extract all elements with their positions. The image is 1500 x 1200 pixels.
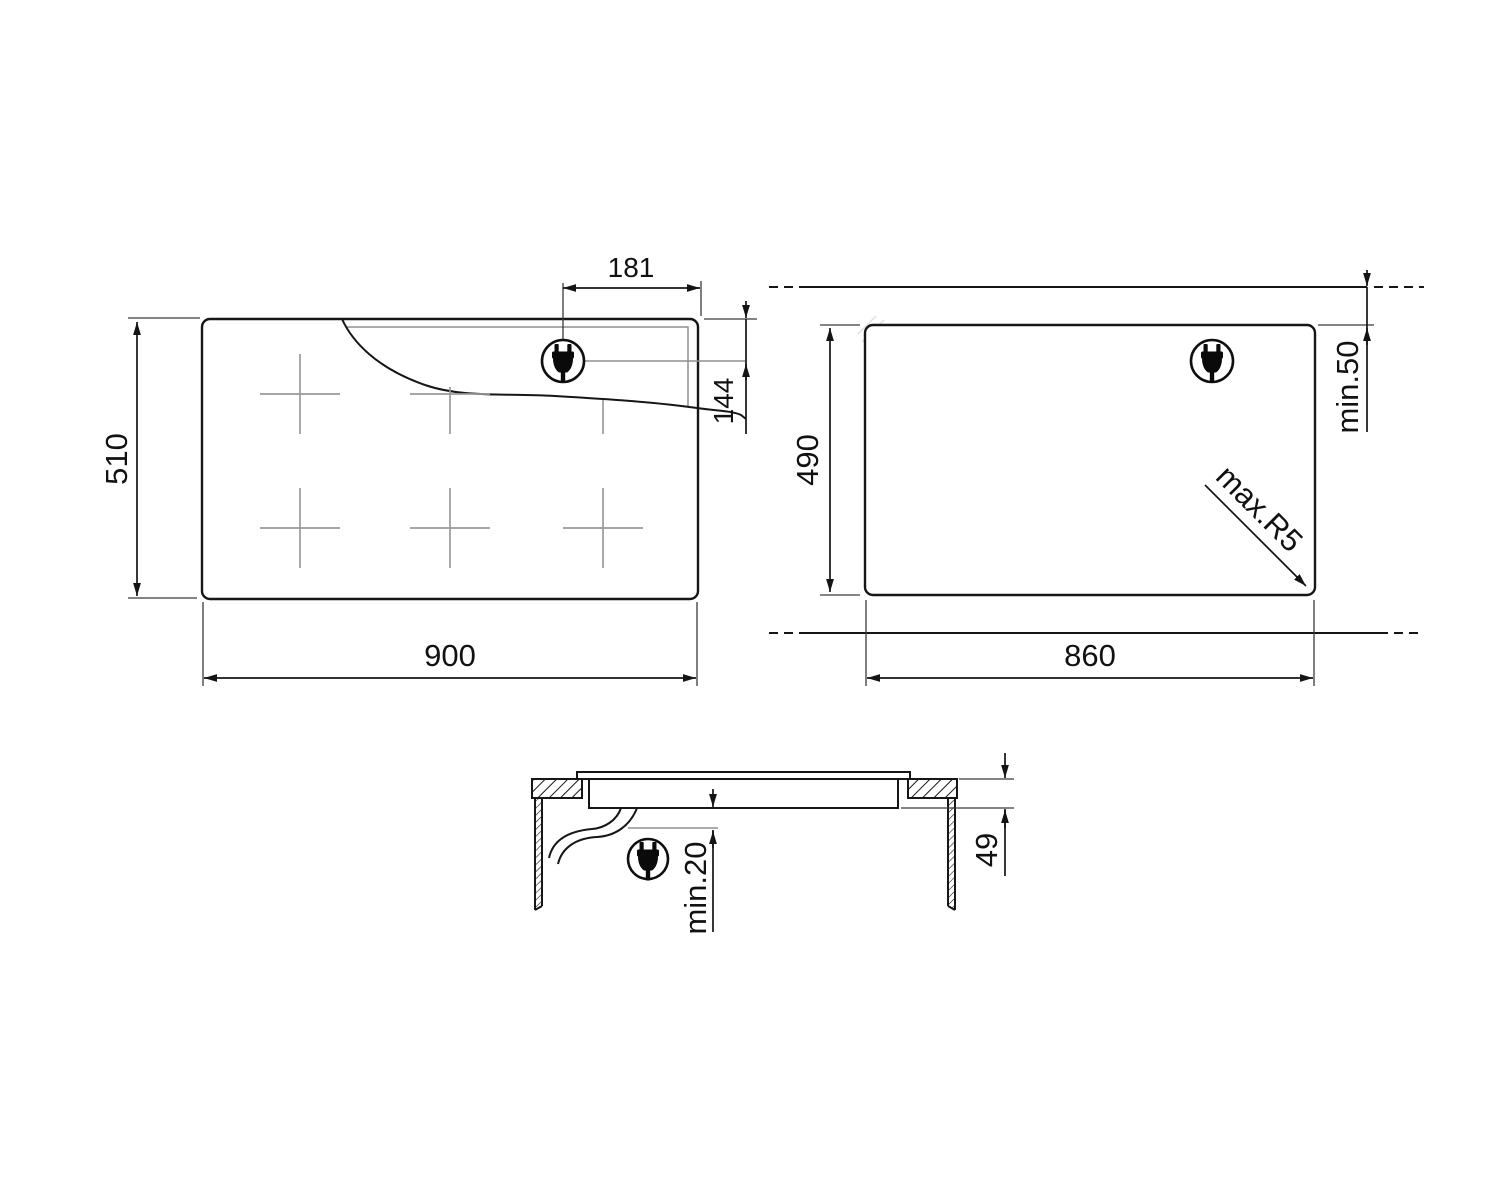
dim-depth-510: 510 — [99, 318, 200, 598]
plan-view: 181 144 510 900 — [99, 252, 757, 686]
worktop-left-block — [532, 779, 582, 798]
installation-drawing: 181 144 510 900 — [0, 0, 1500, 1200]
cabinet-right-panel — [948, 798, 955, 910]
dim-plug-from-top: 144 — [704, 301, 757, 434]
dim-min-front-clearance: min.50 — [1318, 270, 1374, 434]
dim-label-min20: min.20 — [678, 841, 713, 934]
worktop-right-block — [908, 779, 957, 798]
dim-label-144: 144 — [708, 378, 739, 425]
cutout-view: min.50 max.R5 490 860 — [769, 270, 1424, 686]
power-plug-icon — [1191, 340, 1233, 383]
hob-glass-top-section — [577, 772, 910, 779]
dim-plug-from-right: 181 — [563, 252, 701, 316]
dim-label-49: 49 — [969, 833, 1004, 867]
dim-label-510: 510 — [99, 433, 134, 485]
section-view: min.20 49 — [532, 753, 1014, 935]
drawing-canvas: 181 144 510 900 — [0, 0, 1500, 1200]
cutout-outline — [865, 325, 1315, 595]
dim-label-min50: min.50 — [1330, 340, 1365, 433]
power-cable — [549, 808, 637, 864]
dim-label-181: 181 — [608, 252, 655, 283]
dim-width-900: 900 — [203, 602, 697, 686]
dim-label-860: 860 — [1064, 638, 1116, 673]
cabinet-left-panel — [535, 798, 542, 910]
dim-built-in-depth: 49 — [901, 753, 1014, 876]
dim-label-490: 490 — [790, 434, 825, 486]
hob-body-section — [589, 779, 898, 808]
dim-cutout-width-860: 860 — [866, 600, 1314, 686]
dim-label-900: 900 — [424, 638, 476, 673]
dim-cutout-depth-490: 490 — [790, 325, 860, 595]
power-plug-icon — [542, 340, 584, 383]
power-plug-icon — [628, 839, 668, 881]
